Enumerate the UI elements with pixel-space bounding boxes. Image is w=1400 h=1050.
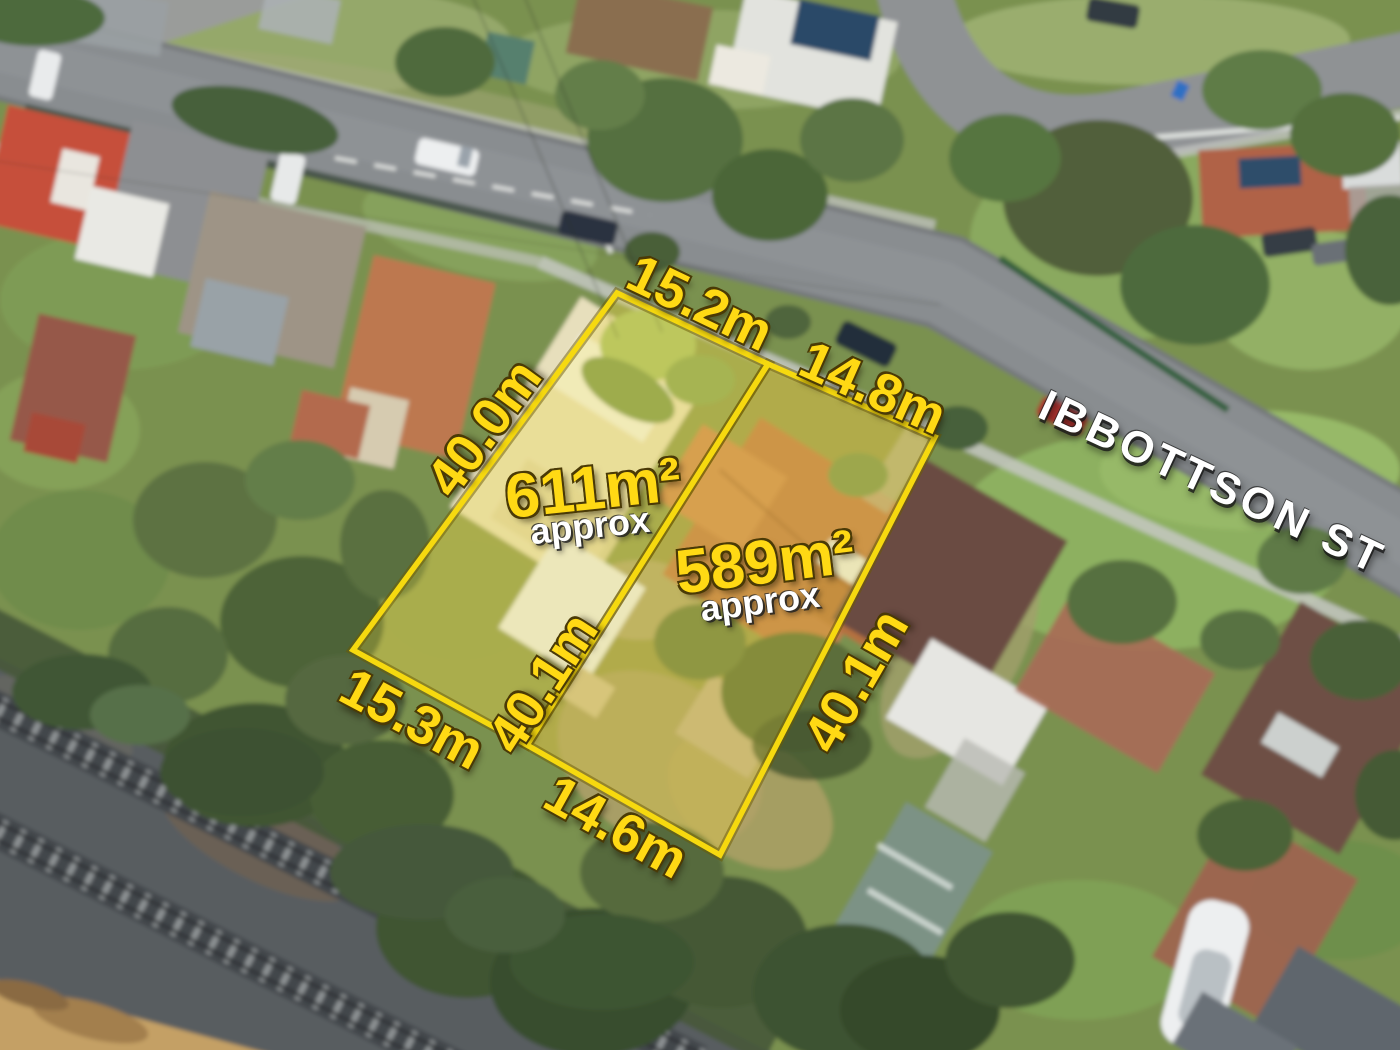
aerial-photo: 15.2m 14.8m 40.0m 611m² approx 589m² app…: [0, 0, 1400, 1050]
aerial-scene: [0, 0, 1400, 1050]
solar-panels: [1238, 155, 1301, 188]
